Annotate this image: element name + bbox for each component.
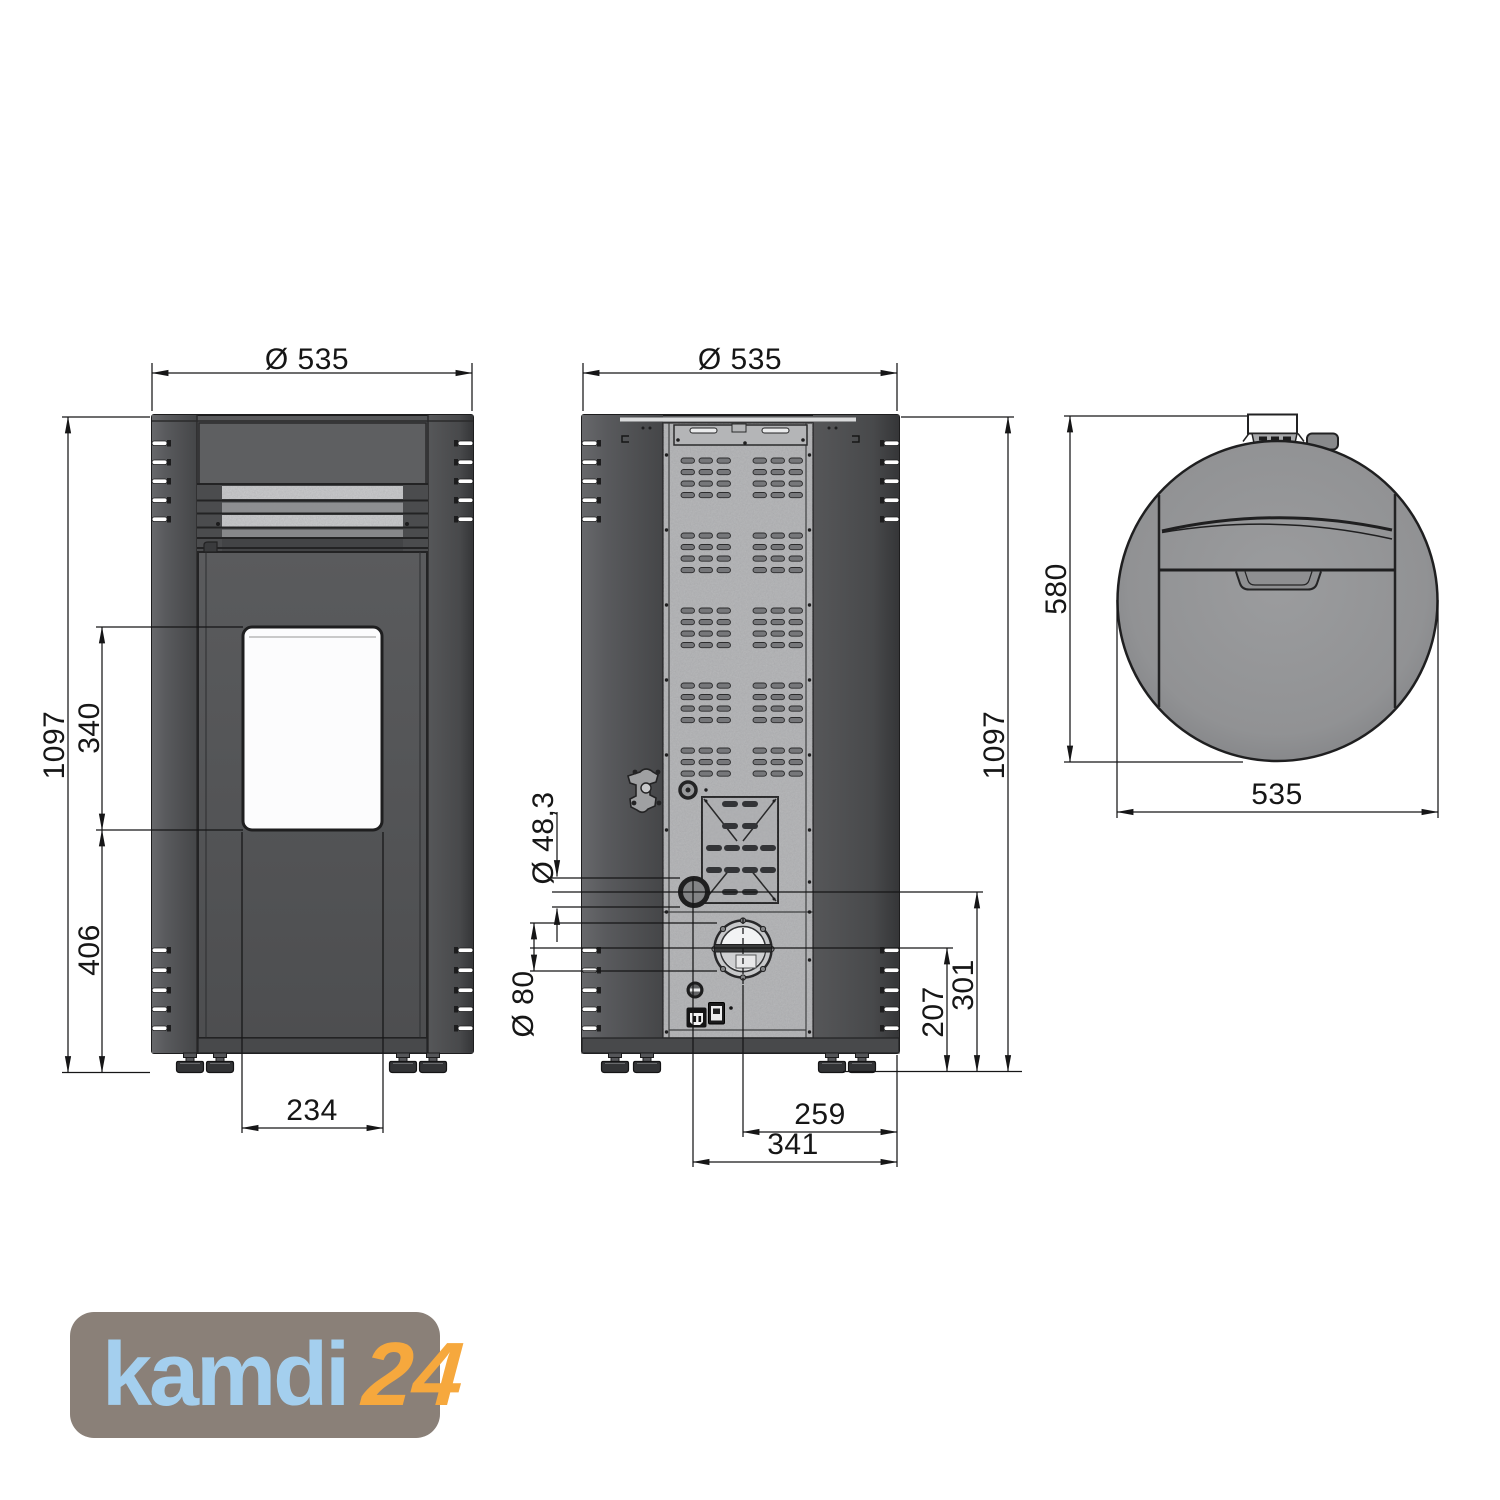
front-height-label: 1097: [38, 711, 71, 780]
front-door: [198, 542, 427, 1038]
brand-suffix: 24: [360, 1330, 466, 1420]
rear-view: [582, 415, 899, 1073]
lid-handle: [1236, 572, 1321, 590]
flue-pipe-diameter-label: Ø 80: [507, 970, 540, 1037]
front-glass-height-label: 340: [73, 702, 106, 754]
front-glass-width-label: 234: [286, 1094, 338, 1127]
door-latch: [204, 542, 217, 552]
drawing-canvas: Ø 535 1097 340 406 234 Ø 535 1097 Ø 48,3…: [0, 0, 1500, 1500]
front-width-label: Ø 535: [265, 343, 349, 376]
door-window: [243, 627, 382, 830]
front-base-height-label: 406: [73, 924, 106, 976]
front-base-strip: [198, 1038, 427, 1053]
top-depth-label: 580: [1040, 563, 1073, 615]
technical-drawing: Ø 535 1097 340 406 234 Ø 535 1097 Ø 48,3…: [0, 0, 1500, 1500]
air-pipe-diameter-label: Ø 48,3: [527, 791, 560, 884]
rear-feet: [602, 1053, 876, 1073]
front-top-panel: [199, 423, 426, 484]
brand-name: kamdi: [102, 1330, 347, 1420]
brand-logo: kamdi 24: [70, 1312, 440, 1438]
flue-center-height-label: 207: [917, 986, 950, 1038]
air-center-offset-label: 341: [767, 1128, 819, 1161]
air-center-height-label: 301: [947, 959, 980, 1011]
rear-base-strip: [582, 1038, 899, 1053]
rear-access-plate: [702, 797, 778, 903]
front-grille: [197, 484, 428, 552]
rear-left-column: [582, 415, 663, 1053]
panel-top-tab: [732, 424, 746, 432]
rear-height-label: 1097: [978, 711, 1011, 780]
rear-top-lid-edge: [620, 418, 856, 422]
top-width-label: 535: [1251, 778, 1303, 811]
front-left-column: [152, 415, 197, 1053]
front-right-column: [428, 415, 473, 1053]
rear-right-column: [813, 415, 899, 1053]
front-feet: [177, 1053, 447, 1073]
flue-center-offset-label: 259: [794, 1098, 846, 1131]
top-body-circle: [1118, 441, 1438, 761]
top-view: [1118, 415, 1438, 762]
front-view: [152, 415, 473, 1073]
cable-grommet-center: [686, 788, 691, 793]
hopper-lid-hinge: [1248, 415, 1297, 434]
coin-screw-slot: [690, 989, 700, 992]
rear-width-label: Ø 535: [698, 343, 782, 376]
